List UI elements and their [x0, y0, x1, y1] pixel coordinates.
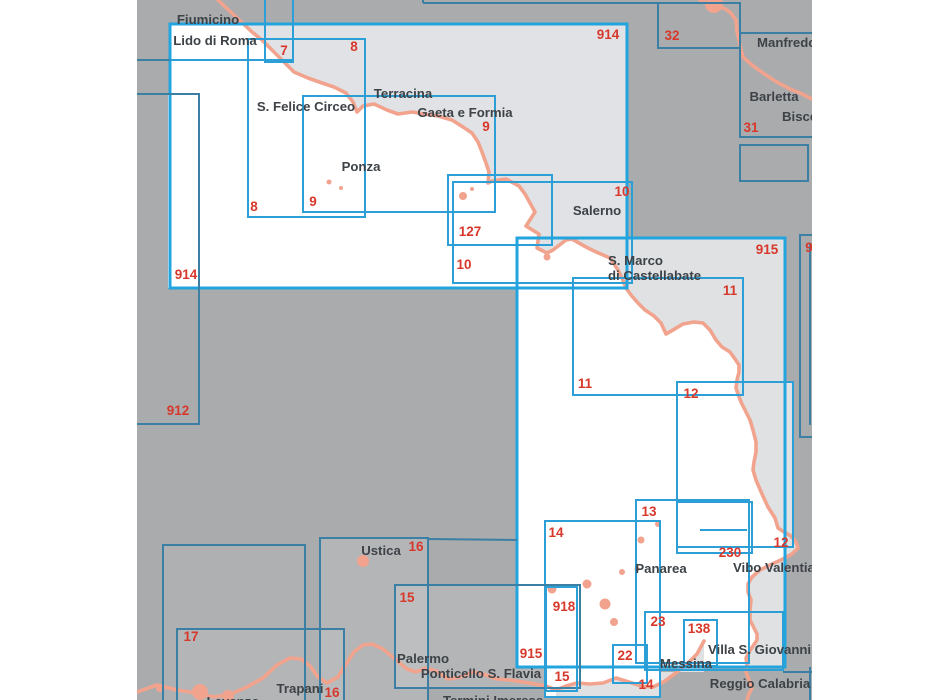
island-mark: [610, 618, 618, 626]
chart-number-label-912[interactable]: 912: [167, 403, 190, 418]
place-label: Trapani: [277, 681, 324, 696]
chart-number-label-15[interactable]: 15: [399, 590, 415, 605]
chart-number-label-9[interactable]: 9: [482, 119, 490, 134]
place-label: Gaeta e Formia: [417, 105, 513, 120]
chart-number-label-13[interactable]: 13: [641, 504, 657, 519]
place-label: Ponticello S. Flavia: [421, 666, 542, 681]
place-label: Palermo: [397, 651, 449, 666]
place-label: Ponza: [342, 159, 382, 174]
chart-number-label-914[interactable]: 914: [175, 267, 198, 282]
chart-number-label-127[interactable]: 127: [459, 224, 482, 239]
place-label: Levanzo: [207, 694, 260, 700]
chart-number-label-230[interactable]: 230: [719, 545, 742, 560]
sea-area-strip-912: [168, 94, 199, 288]
place-label: Messina: [660, 656, 713, 671]
place-label: Ustica: [361, 543, 401, 558]
chart-number-label-918[interactable]: 918: [553, 599, 576, 614]
place-label: S. Felice Circeo: [257, 99, 355, 114]
chart-number-label-17[interactable]: 17: [183, 629, 198, 644]
chart-number-label-15[interactable]: 15: [554, 669, 570, 684]
chart-number-label-8[interactable]: 8: [350, 39, 358, 54]
chart-number-label-16[interactable]: 16: [408, 539, 424, 554]
chart-number-label-31[interactable]: 31: [743, 120, 759, 135]
page-margin-left: [0, 0, 137, 700]
chart-number-label-14[interactable]: 14: [638, 677, 654, 692]
chart-number-label-12[interactable]: 12: [773, 535, 788, 550]
place-label: Lido di Roma: [173, 33, 257, 48]
chart-rect-edge-segment: [428, 539, 517, 540]
chart-number-label-23[interactable]: 23: [650, 614, 666, 629]
chart-catalog-screenshot: 9149147889912710109123231915915911111212…: [0, 0, 950, 700]
chart-area-highlight-A: [163, 545, 305, 700]
chart-number-label-32[interactable]: 32: [664, 28, 679, 43]
chart-number-label-14[interactable]: 14: [548, 525, 564, 540]
chart-number-label-16[interactable]: 16: [324, 685, 340, 700]
page-margin-right: [812, 0, 950, 700]
place-label: Reggio Calabria: [710, 676, 811, 691]
chart-number-label-915[interactable]: 915: [520, 646, 543, 661]
island-mark: [192, 684, 208, 700]
map-canvas[interactable]: 9149147889912710109123231915915911111212…: [137, 0, 812, 700]
chart-number-label-9[interactable]: 9: [309, 194, 317, 209]
chart-number-label-22[interactable]: 22: [617, 648, 632, 663]
chart-number-label-138[interactable]: 138: [688, 621, 711, 636]
chart-number-label-10[interactable]: 10: [614, 184, 629, 199]
island-mark: [600, 599, 611, 610]
place-label: Bisceglie: [782, 109, 812, 124]
island-mark: [583, 580, 592, 589]
chart-number-label-8[interactable]: 8: [250, 199, 258, 214]
place-label: S. Marco: [608, 253, 663, 268]
island-mark: [339, 186, 343, 190]
place-label: di Castellabate: [608, 268, 701, 283]
island-mark: [327, 180, 332, 185]
island-mark: [619, 569, 625, 575]
place-label: Barletta: [749, 89, 799, 104]
island-mark: [544, 254, 551, 261]
island-mark: [459, 192, 467, 200]
chart-number-label-11[interactable]: 11: [578, 376, 593, 391]
chart-number-label-11[interactable]: 11: [723, 283, 738, 298]
place-label: Villa S. Giovanni: [708, 642, 811, 657]
place-label: Panarea: [635, 561, 687, 576]
place-label: Terracina: [374, 86, 433, 101]
chart-number-label-915[interactable]: 915: [756, 242, 779, 257]
chart-number-label-12[interactable]: 12: [683, 386, 698, 401]
chart-number-label-914[interactable]: 914: [597, 27, 620, 42]
place-label: Fiumicino: [177, 12, 239, 27]
island-mark: [638, 537, 645, 544]
chart-number-label-10[interactable]: 10: [456, 257, 471, 272]
place-label: Manfredonia: [757, 35, 812, 50]
island-mark: [470, 187, 474, 191]
chart-number-label-7[interactable]: 7: [280, 43, 288, 58]
chart-number-label-916[interactable]: 9: [805, 240, 812, 255]
place-label: Vibo Valentia: [733, 560, 812, 575]
place-label: Termini Imerese: [443, 693, 543, 700]
chart-index-map[interactable]: 9149147889912710109123231915915911111212…: [137, 0, 812, 700]
place-label: Salerno: [573, 203, 621, 218]
